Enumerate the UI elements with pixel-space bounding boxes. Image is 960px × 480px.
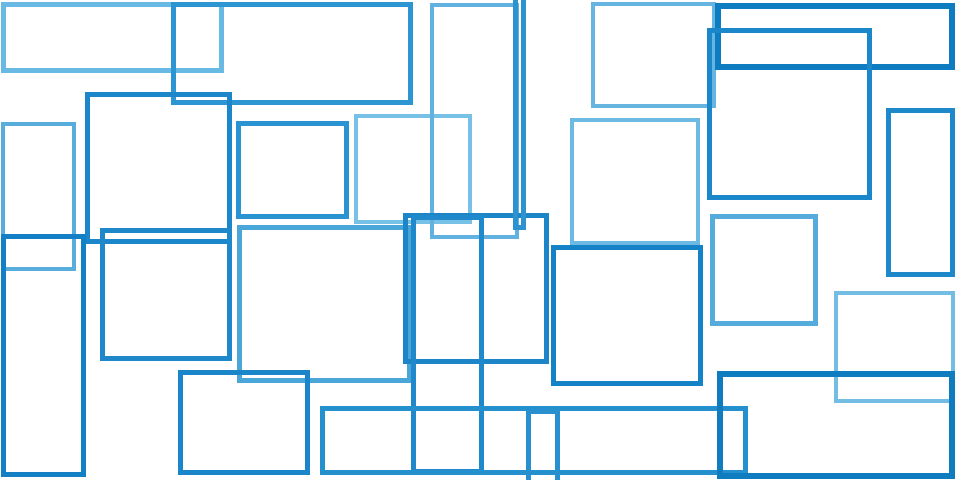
rectangle-right-tall-narrow <box>886 108 955 277</box>
rectangle-bottom-narrow-column <box>526 409 560 480</box>
rectangle-right-big-dark <box>707 28 872 200</box>
rectangle-center-big-light <box>237 225 412 383</box>
abstract-canvas <box>0 0 960 480</box>
rectangle-right-mid-light <box>710 214 818 326</box>
rectangle-left-tall-dark <box>1 234 86 477</box>
rectangle-top-band-medium <box>171 2 413 105</box>
rectangle-center-small-square <box>236 121 349 219</box>
rectangle-bottom-right-deep <box>717 371 955 479</box>
rectangle-top-center-light <box>591 2 716 108</box>
rectangle-mid-center-light <box>570 118 700 245</box>
rectangle-center-dark-square <box>551 245 703 386</box>
rectangle-left-square-dark <box>85 92 232 244</box>
rectangle-bottom-left-square <box>178 370 310 475</box>
rectangle-center-sliver-tall <box>513 0 526 230</box>
rectangle-center-tall-light <box>430 3 519 239</box>
rectangle-left-mid-square <box>100 228 232 361</box>
